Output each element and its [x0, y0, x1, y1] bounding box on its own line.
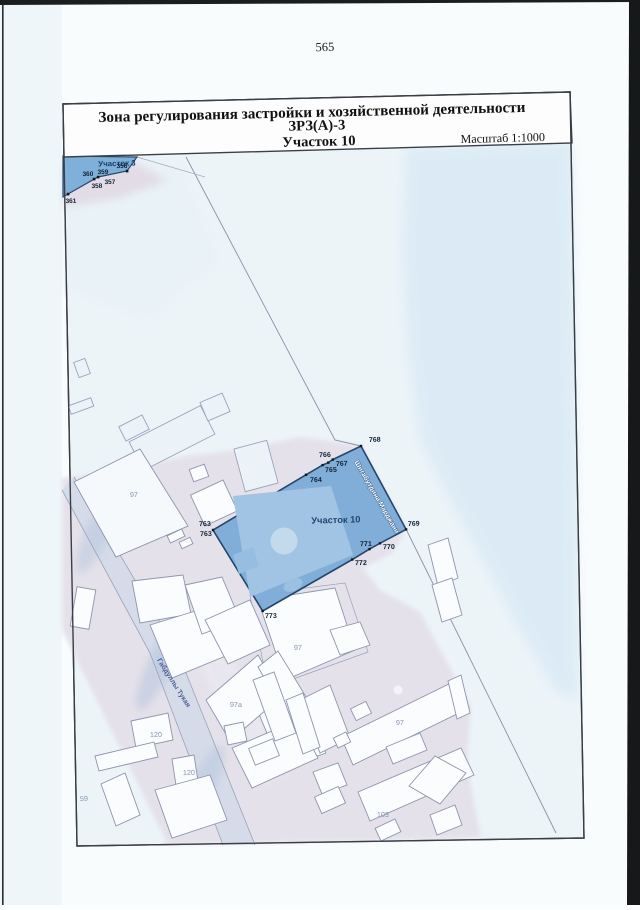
svg-text:59: 59: [80, 794, 88, 803]
svg-text:769: 769: [408, 521, 420, 528]
svg-text:ЗРЗ(А)-3: ЗРЗ(А)-3: [288, 117, 345, 134]
svg-text:120: 120: [150, 730, 162, 739]
svg-text:770: 770: [383, 544, 395, 551]
svg-text:763: 763: [200, 531, 212, 538]
svg-text:97: 97: [294, 643, 302, 652]
svg-text:357: 357: [104, 179, 115, 186]
svg-text:356: 356: [116, 163, 127, 170]
svg-text:773: 773: [265, 613, 277, 620]
svg-text:120: 120: [183, 768, 195, 777]
svg-text:771: 771: [360, 541, 372, 548]
svg-text:772: 772: [355, 560, 367, 567]
svg-text:97: 97: [130, 490, 138, 499]
svg-text:97а: 97а: [230, 700, 242, 709]
svg-text:361: 361: [65, 198, 76, 205]
svg-text:765: 765: [325, 467, 337, 474]
svg-text:Участок 10: Участок 10: [311, 514, 360, 525]
svg-text:764: 764: [310, 477, 322, 484]
svg-text:Участок 10: Участок 10: [282, 133, 356, 151]
svg-text:Масштаб 1:1000: Масштаб 1:1000: [460, 130, 545, 146]
svg-text:359: 359: [97, 169, 108, 176]
svg-text:763: 763: [199, 521, 211, 528]
svg-text:565: 565: [315, 40, 334, 54]
svg-text:358: 358: [91, 183, 102, 190]
svg-text:103: 103: [377, 810, 389, 819]
svg-text:360: 360: [82, 171, 93, 178]
svg-text:767: 767: [336, 461, 348, 468]
svg-text:768: 768: [369, 437, 381, 444]
svg-text:97: 97: [396, 718, 404, 727]
svg-text:766: 766: [319, 452, 331, 459]
